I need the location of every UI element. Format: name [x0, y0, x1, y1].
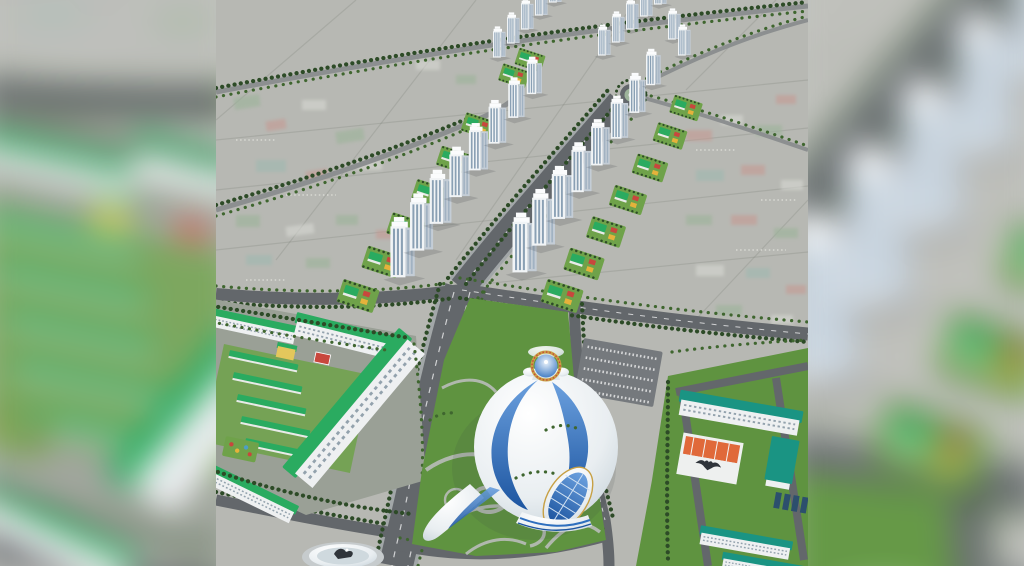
aerial-city-render [0, 0, 1024, 566]
main-render [216, 0, 808, 566]
blur-panel-left [0, 0, 216, 566]
blur-panel-right [808, 0, 1024, 566]
